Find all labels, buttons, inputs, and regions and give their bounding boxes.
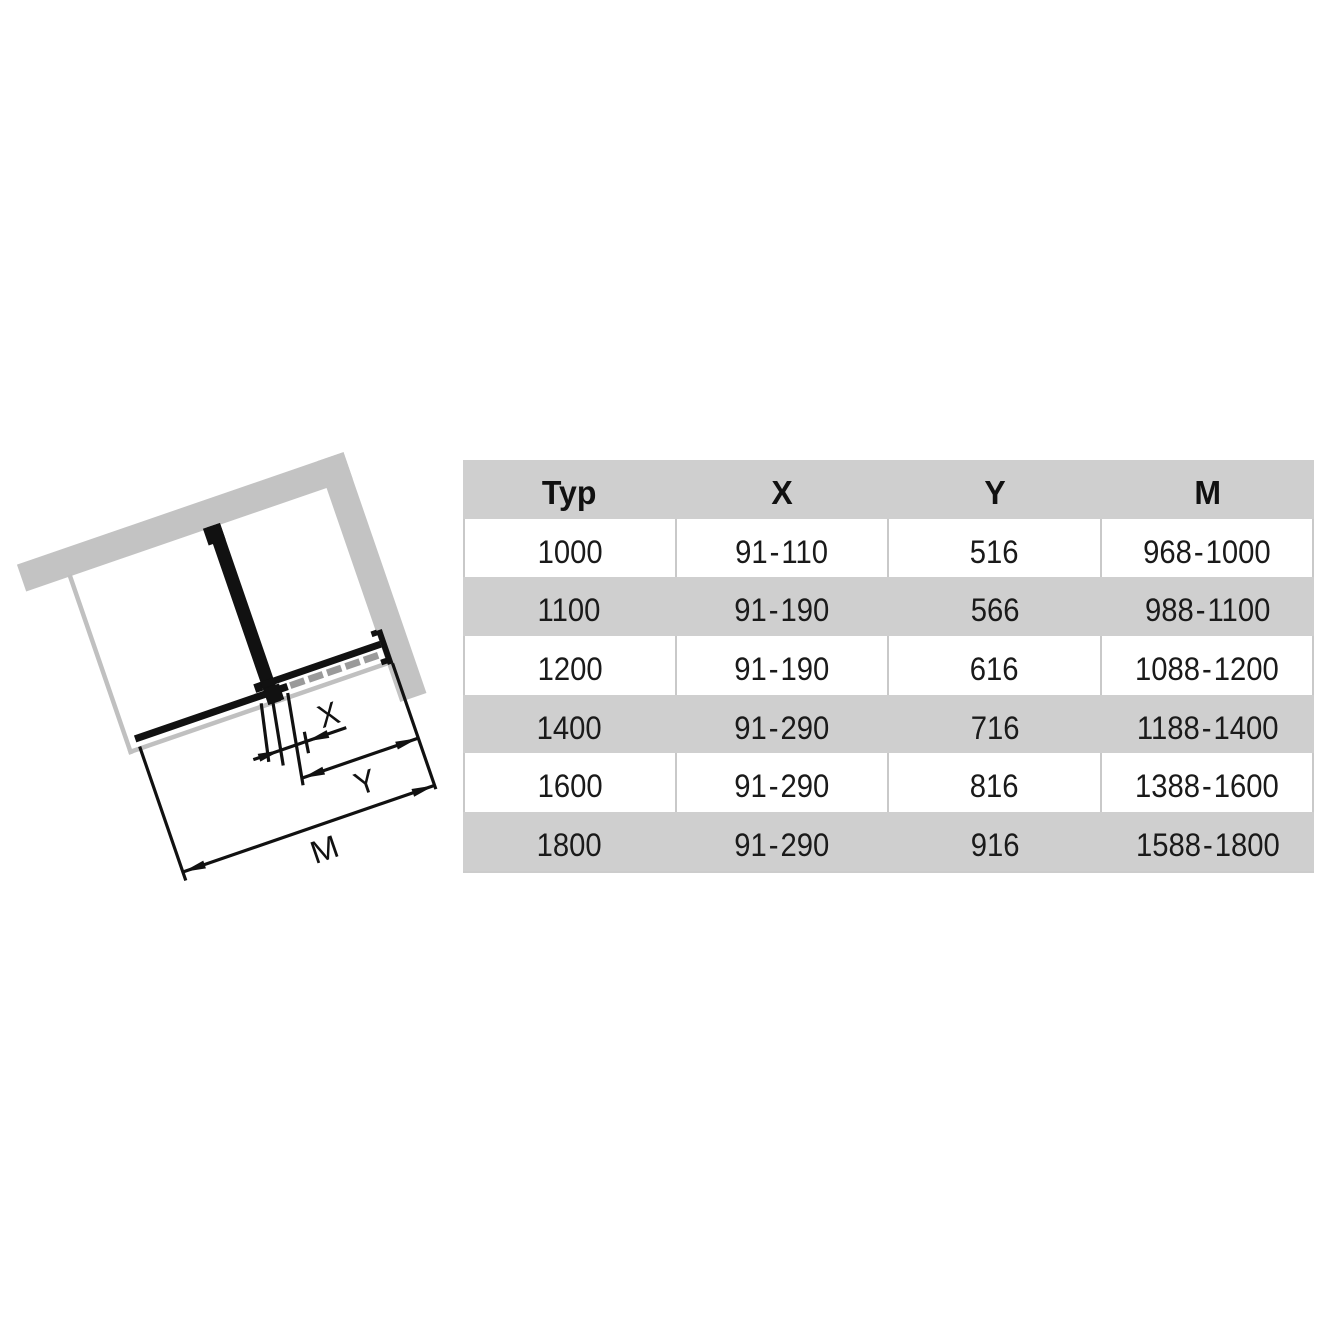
svg-text:X: X bbox=[313, 694, 344, 735]
svg-text:M: M bbox=[306, 828, 344, 871]
svg-text:Y: Y bbox=[349, 762, 381, 803]
